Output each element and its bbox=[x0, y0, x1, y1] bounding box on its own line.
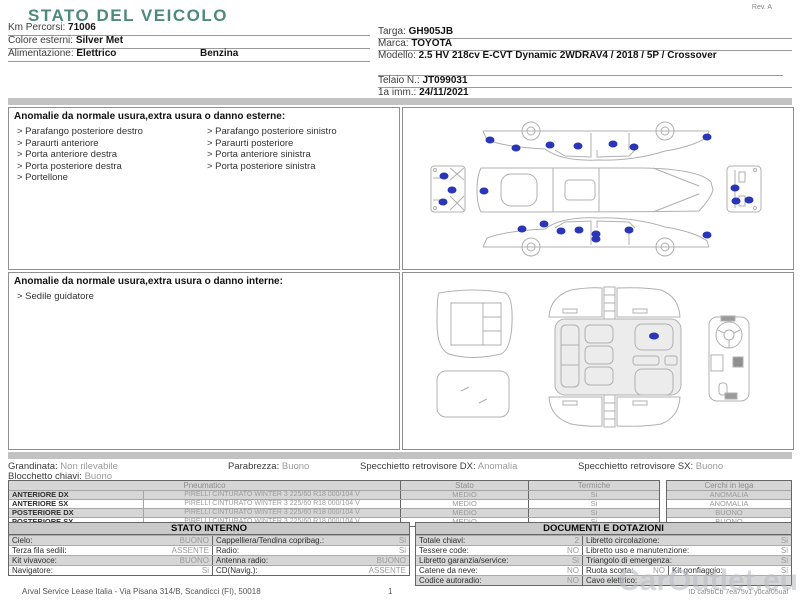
anomaly-item: > Paraurti anteriore bbox=[17, 138, 143, 150]
damage-marker bbox=[486, 137, 495, 144]
car-interior-diagram-graphic bbox=[403, 273, 791, 447]
external-anomalies-list-left: > Parafango posteriore destro > Paraurti… bbox=[17, 126, 143, 184]
specchietto-sx-status: Specchietto retrovisore SX: Buono bbox=[578, 461, 723, 472]
damage-marker bbox=[557, 228, 566, 235]
exterior-damage-diagram bbox=[402, 107, 794, 270]
colore-esterni-value: Silver Met bbox=[76, 35, 123, 46]
telaio-label: Telaio N.: bbox=[378, 75, 420, 86]
tires-table-header: Pneumatico Stato Termiche bbox=[9, 481, 659, 490]
internal-anomalies-header: Anomalie da normale usura,extra usura o … bbox=[14, 276, 283, 287]
section-divider-bar bbox=[8, 452, 792, 459]
damage-marker bbox=[575, 227, 584, 234]
modello-label: Modello: bbox=[378, 50, 416, 61]
internal-anomalies-list: > Sedile guidatore bbox=[17, 291, 94, 303]
tire-row: POSTERIORE DX PIRELLI CINTURATO WINTER 3… bbox=[9, 508, 659, 517]
footer-doc-id: ID caf9bCb 7ea75v1 y0caf05ual bbox=[688, 589, 788, 596]
damage-marker bbox=[732, 198, 741, 205]
damage-marker bbox=[630, 144, 639, 151]
damage-marker bbox=[480, 188, 489, 195]
damage-marker bbox=[448, 187, 457, 194]
damage-marker bbox=[592, 236, 601, 243]
marca-value: TOYOTA bbox=[411, 38, 452, 49]
alimentazione-value-1: Elettrico bbox=[76, 48, 116, 59]
stato-interno-row: Terza fila sedili:ASSENTE Radio:Si bbox=[9, 545, 409, 555]
anomaly-item: > Porta posteriore destra bbox=[17, 161, 143, 173]
damage-marker bbox=[625, 227, 634, 234]
anomaly-item: > Parafango posteriore sinistro bbox=[207, 126, 337, 138]
anomaly-item: > Porta anteriore destra bbox=[17, 149, 143, 161]
damage-marker bbox=[703, 232, 712, 239]
footer-page-number: 1 bbox=[388, 587, 392, 596]
anomaly-item: > Paraurti posteriore bbox=[207, 138, 337, 150]
damage-marker bbox=[649, 333, 659, 340]
telaio-value: JT099031 bbox=[422, 75, 467, 86]
stato-interno-title: STATO INTERNO bbox=[9, 523, 409, 535]
section-divider-bar bbox=[8, 98, 792, 105]
modello-row: Modello: 2.5 HV 218cv E-CVT Dynamic 2WDR… bbox=[378, 50, 783, 76]
damage-marker-group bbox=[439, 134, 754, 243]
targa-value: GH905JB bbox=[409, 26, 453, 37]
anomaly-item: > Parafango posteriore destro bbox=[17, 126, 143, 138]
revision-label: Rev. A bbox=[752, 4, 772, 11]
damage-marker bbox=[518, 226, 527, 233]
targa-label: Targa: bbox=[378, 26, 406, 37]
header-pneumatico: Pneumatico bbox=[9, 481, 401, 490]
km-percorsi-label: Km Percorsi: bbox=[8, 22, 65, 33]
alimentazione-row: Alimentazione: Elettrico Benzina bbox=[8, 48, 370, 62]
footer-company: Arval Service Lease Italia - Via Pisana … bbox=[22, 587, 261, 596]
tires-table: Pneumatico Stato Termiche ANTERIORE DX P… bbox=[8, 480, 660, 527]
documenti-row: Tessere code:NO Libretto uso e manutenzi… bbox=[416, 545, 791, 555]
external-anomalies-header: Anomalie da normale usura,extra usura o … bbox=[14, 111, 285, 122]
prima-immatricolazione-label: 1a imm.: bbox=[378, 87, 416, 98]
external-anomalies-list-right: > Parafango posteriore sinistro > Paraur… bbox=[207, 126, 337, 172]
stato-interno-row: Cielo:BUONO Cappelliera/Tendina copribag… bbox=[9, 535, 409, 545]
marca-label: Marca: bbox=[378, 38, 409, 49]
interior-damage-diagram bbox=[402, 272, 794, 450]
damage-marker bbox=[703, 134, 712, 141]
cerchi-row: BUONO bbox=[667, 508, 791, 517]
colore-esterni-label: Colore esterni: bbox=[8, 35, 73, 46]
damage-marker bbox=[745, 197, 754, 204]
vehicle-condition-report: STATO DEL VEICOLO Rev. A Km Percorsi: 71… bbox=[0, 0, 800, 600]
anomaly-item: > Porta anteriore sinistra bbox=[207, 149, 337, 161]
parabrezza-status: Parabrezza: Buono bbox=[228, 461, 309, 472]
cerchi-row: ANOMALIA bbox=[667, 499, 791, 508]
modello-value: 2.5 HV 218cv E-CVT Dynamic 2WDRAV4 / 201… bbox=[419, 50, 717, 61]
documenti-dotazioni-title: DOCUMENTI E DOTAZIONI bbox=[416, 523, 791, 535]
prima-immatricolazione-value: 24/11/2021 bbox=[419, 87, 469, 98]
damage-marker bbox=[609, 141, 618, 148]
damage-marker bbox=[574, 143, 583, 150]
anomaly-item: > Porta posteriore sinistra bbox=[207, 161, 337, 173]
external-anomalies-box: Anomalie da normale usura,extra usura o … bbox=[8, 107, 400, 270]
documenti-row: Totale chiavi:2 Libretto circolazione:Si bbox=[416, 535, 791, 545]
tire-row: ANTERIORE DX PIRELLI CINTURATO WINTER 3 … bbox=[9, 490, 659, 499]
header-cerchi-in-lega: Cerchi in lega bbox=[667, 481, 791, 490]
header-termiche: Termiche bbox=[529, 481, 659, 490]
alimentazione-label: Alimentazione: bbox=[8, 48, 74, 59]
cerchi-row: ANOMALIA bbox=[667, 490, 791, 499]
km-percorsi-row: Km Percorsi: 71006 bbox=[8, 22, 370, 36]
stato-interno-table: STATO INTERNO Cielo:BUONO Cappelliera/Te… bbox=[8, 522, 410, 576]
specchietto-dx-status: Specchietto retrovisore DX: Anomalia bbox=[360, 461, 517, 472]
anomaly-item: > Sedile guidatore bbox=[17, 291, 94, 303]
alimentazione-value-2: Benzina bbox=[200, 48, 238, 60]
damage-marker bbox=[731, 185, 740, 192]
km-percorsi-value: 71006 bbox=[68, 22, 96, 33]
damage-marker bbox=[512, 145, 521, 152]
colore-esterni-row: Colore esterni: Silver Met bbox=[8, 35, 370, 49]
cerchi-table: Cerchi in lega ANOMALIA ANOMALIA BUONO B… bbox=[666, 480, 792, 527]
car-exterior-diagram-graphic bbox=[403, 108, 791, 267]
header-stato: Stato bbox=[401, 481, 529, 490]
tire-row: ANTERIORE SX PIRELLI CINTURATO WINTER 3 … bbox=[9, 499, 659, 508]
damage-marker bbox=[540, 221, 549, 228]
stato-interno-row: Navigatore:Si CD(Navig.):ASSENTE bbox=[9, 565, 409, 575]
damage-marker bbox=[440, 173, 449, 180]
stato-interno-row: Kit vivavoce:BUONO Antenna radio:BUONO bbox=[9, 555, 409, 565]
damage-marker bbox=[439, 199, 448, 206]
internal-anomalies-box: Anomalie da normale usura,extra usura o … bbox=[8, 272, 400, 450]
damage-marker bbox=[546, 142, 555, 149]
anomaly-item: > Portellone bbox=[17, 172, 143, 184]
